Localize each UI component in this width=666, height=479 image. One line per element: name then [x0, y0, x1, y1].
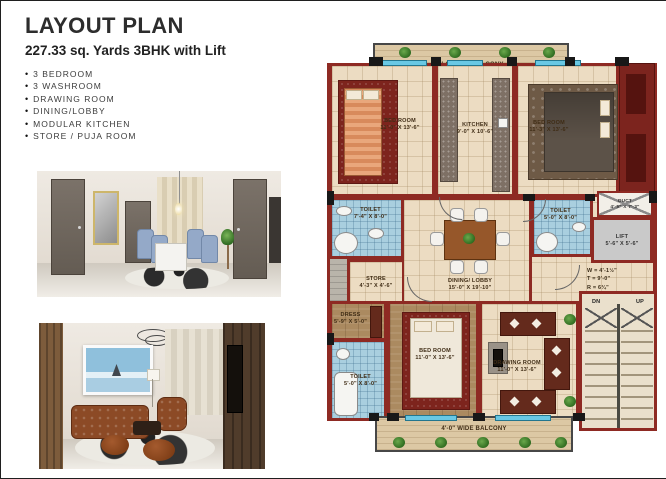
- door: [233, 179, 267, 279]
- room-label: TOILET 7'-4" X 8'-0": [354, 207, 387, 221]
- plant-icon: [435, 437, 447, 448]
- plant-icon: [564, 396, 576, 407]
- wash-basin: [572, 222, 586, 232]
- window: [381, 60, 427, 66]
- stair-railing: [621, 308, 653, 328]
- floor-plan: 4'-0" WIDE BALCONY BED ROOM 11'-0" X 13'…: [327, 37, 661, 461]
- plant-icon: [519, 437, 531, 448]
- stair-divider: [617, 304, 620, 428]
- plant-icon: [399, 47, 411, 58]
- cushion: [552, 346, 562, 356]
- wall-column: [327, 191, 334, 205]
- door: [51, 179, 85, 275]
- cushion: [510, 397, 520, 407]
- wall-column: [369, 413, 379, 421]
- room-label: LIFT 5'-6" X 5'-6": [594, 234, 650, 248]
- closet: [626, 134, 646, 182]
- plant-icon: [477, 437, 489, 448]
- wall-column: [573, 413, 585, 421]
- seascape-artwork: [83, 345, 153, 395]
- wash-basin: [336, 348, 350, 360]
- wardrobe-block: [619, 63, 655, 199]
- bathtub: [334, 232, 358, 254]
- pillow: [346, 90, 362, 100]
- pillow: [436, 321, 454, 332]
- room-label: DUCT 4'-9" X 7'-3": [599, 199, 651, 211]
- window: [405, 415, 457, 421]
- bedroom-top-left: BED ROOM 11'-0" X 13'-6": [329, 63, 435, 197]
- room-label: TOILET 5'-0" X 8'-0": [344, 374, 377, 388]
- table-plant: [463, 233, 475, 244]
- stairs-up-label: UP: [636, 299, 644, 306]
- wall-column: [387, 413, 399, 421]
- room-label: DRESS 5'-9" X 5'-0": [334, 312, 367, 326]
- feature-item: 3 WASHROOM: [25, 80, 136, 92]
- lift: LIFT 5'-6" X 5'-6": [591, 217, 653, 263]
- plant-icon: [393, 437, 405, 448]
- plant-icon: [555, 437, 567, 448]
- room-label: DINING/ LOBBY 15'-0" X 19'-10": [448, 278, 492, 292]
- closet: [626, 74, 646, 114]
- bedroom-top-right: BED ROOM 11'-3" X 13'-6": [515, 63, 619, 197]
- tv-screen: [227, 345, 243, 413]
- feature-item: STORE / PUJA ROOM: [25, 130, 136, 142]
- feature-item: DRAWING ROOM: [25, 93, 136, 105]
- feature-item: 3 BEDROOM: [25, 68, 136, 80]
- plant-icon: [449, 47, 461, 58]
- sail-shape: [112, 364, 121, 376]
- stair-railing: [585, 308, 617, 328]
- door-knob: [78, 226, 81, 229]
- wood-pillar: [39, 323, 63, 469]
- sofa: [500, 390, 556, 414]
- wall-column: [585, 194, 595, 201]
- wall-column: [369, 57, 383, 66]
- armchair: [157, 397, 187, 431]
- sofa: [544, 338, 570, 390]
- pillow: [600, 100, 610, 116]
- toilet-seat: [368, 228, 384, 239]
- chair: [474, 208, 488, 222]
- balcony-label: 4'-0" WIDE BALCONY: [377, 426, 571, 434]
- stair-flight: [621, 330, 653, 426]
- chair: [430, 232, 444, 246]
- wall-artwork: [93, 191, 119, 245]
- plant-stand: [227, 245, 229, 269]
- toilet-left: TOILET 7'-4" X 8'-0": [329, 197, 404, 259]
- coffee-table: [133, 421, 161, 435]
- door-knob: [237, 228, 240, 231]
- dining-room-photo: [37, 171, 281, 297]
- window: [495, 415, 551, 421]
- staircase: DN UP: [579, 291, 657, 431]
- cushion: [532, 397, 542, 407]
- room-label: BED ROOM 11'-3" X 13'-6": [520, 120, 578, 134]
- bathtub: [536, 232, 558, 252]
- dining-table: [155, 243, 187, 271]
- wall-column: [473, 413, 485, 421]
- sofa: [500, 312, 556, 336]
- floor-lamp: [147, 369, 160, 381]
- chair: [450, 260, 464, 274]
- window: [447, 60, 483, 66]
- page-subtitle: 227.33 sq. Yards 3BHK with Lift: [25, 43, 226, 58]
- plant-icon: [564, 314, 576, 325]
- feature-item: DINING/LOBBY: [25, 105, 136, 117]
- pillow: [600, 122, 610, 138]
- stairs-down-label: DN: [592, 299, 600, 306]
- dining-chair: [201, 235, 218, 263]
- wall-column: [431, 57, 441, 66]
- tv-wall-unit: [223, 323, 265, 469]
- pillow: [363, 90, 379, 100]
- chair: [474, 260, 488, 274]
- room-label: KITCHEN 9'-0" X 10'-6": [438, 122, 512, 136]
- chair: [496, 232, 510, 246]
- room-label: TOILET 5'-0" X 8'-0": [544, 208, 577, 222]
- floor-lamp-pole: [152, 379, 153, 407]
- pillow: [414, 321, 432, 332]
- stair-flight: [585, 330, 617, 426]
- feature-item: MODULAR KITCHEN: [25, 118, 136, 130]
- kitchen: KITCHEN 9'-0" X 10'-6": [435, 63, 515, 197]
- ottoman: [143, 439, 175, 461]
- wardrobe: [370, 306, 382, 338]
- living-room-photo: [39, 323, 265, 469]
- toilet-bottom: TOILET 5'-0" X 8'-0": [329, 339, 387, 421]
- wash-basin: [336, 206, 352, 216]
- room-label: DRAWING ROOM 11'-0" X 13'-6": [488, 360, 546, 374]
- layout-plan-flyer: LAYOUT PLAN 227.33 sq. Yards 3BHK with L…: [0, 0, 666, 479]
- plant-icon: [543, 47, 555, 58]
- wall-column: [565, 57, 575, 66]
- pendant-lamp: [175, 203, 182, 215]
- pendant-lamp-wire: [179, 171, 180, 205]
- page-title: LAYOUT PLAN: [25, 13, 184, 39]
- duct: DUCT 4'-9" X 7'-3": [597, 191, 653, 217]
- bedroom-bottom: BED ROOM 11'-0" X 13'-6": [387, 301, 479, 421]
- room-label: STORE 4'-3" X 4'-6": [350, 276, 402, 290]
- ottoman: [101, 435, 129, 455]
- feature-list: 3 BEDROOM 3 WASHROOM DRAWING ROOM DINING…: [25, 68, 136, 142]
- cushion: [552, 368, 562, 378]
- bottom-balcony: 4'-0" WIDE BALCONY: [375, 416, 573, 452]
- wall-column: [649, 191, 657, 203]
- room-label: BED ROOM 11'-0" X 13'-6": [402, 348, 468, 362]
- room-label: BED ROOM 11'-0" X 13'-6": [368, 118, 432, 132]
- wall-column: [327, 333, 334, 345]
- cushion: [532, 319, 542, 329]
- stair-specs: W = 4'-1½" T = 9'-0" R = 6¾": [587, 267, 617, 292]
- wall-column: [615, 57, 629, 66]
- cushion: [510, 319, 520, 329]
- drawing-room: DRAWING ROOM 11'-0" X 13'-6": [479, 301, 579, 421]
- potted-plant: [221, 229, 234, 245]
- side-cabinet: [269, 197, 281, 263]
- wall-column: [507, 57, 517, 66]
- dress-room: DRESS 5'-9" X 5'-0": [329, 301, 387, 341]
